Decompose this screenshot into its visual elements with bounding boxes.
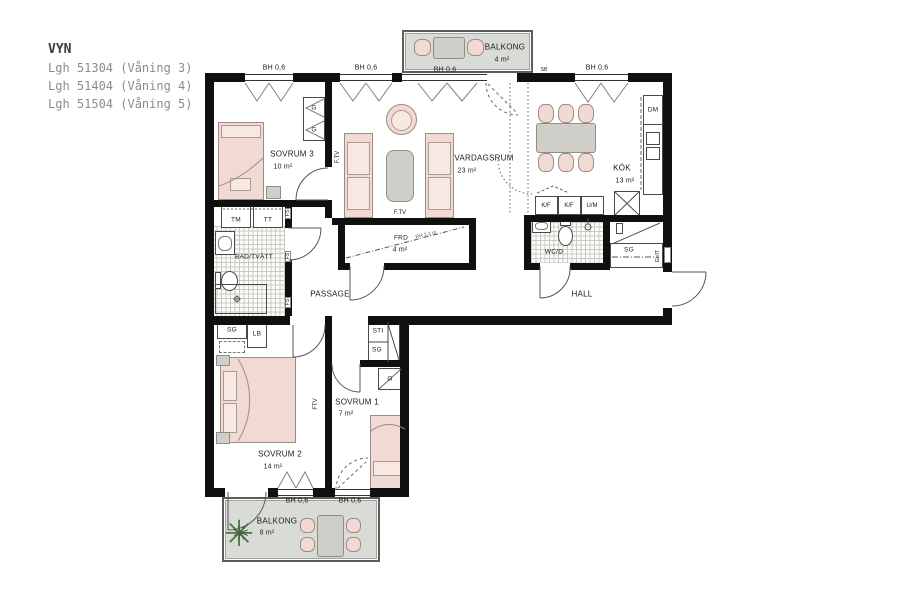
window-sovrum1 <box>335 489 370 496</box>
wall <box>368 316 405 325</box>
wall <box>392 73 402 82</box>
room-label-vardagsrum: VARDAGSRUM <box>454 154 513 163</box>
dishwasher-label: DM <box>648 107 659 114</box>
tv-outlet-label: F.TV <box>335 151 341 163</box>
wardrobe-label: G <box>311 105 316 112</box>
wall <box>293 73 340 82</box>
window-height-label: BH 0,6 <box>586 65 609 72</box>
door-frd <box>350 266 384 300</box>
pillow-sovrum2-1 <box>223 371 237 401</box>
coffee-table <box>386 150 414 202</box>
wc-toilet <box>558 226 573 246</box>
room-label-wcd: WC/D <box>545 249 563 256</box>
window-sovrum3 <box>245 74 293 81</box>
pillow-sovrum3 <box>221 125 261 138</box>
nightstand-sovrum3 <box>266 186 281 199</box>
tv-outlet-label: FTV <box>313 398 319 409</box>
apartment-line-3: Lgh 51504 (Våning 5) <box>48 97 193 111</box>
wardrobe-label: G <box>387 376 392 383</box>
room-area-kok: 13 m² <box>616 178 635 185</box>
shaft-sti-label: STI <box>373 328 384 335</box>
nightstand-sovrum2-1 <box>216 355 230 366</box>
wall <box>400 316 672 325</box>
wall <box>205 200 332 207</box>
window-height-label: BH 0,6 <box>263 65 286 72</box>
bathroom-sink-basin <box>218 236 232 251</box>
balcony-chair <box>346 518 361 533</box>
window-door-sovrum1-dashed <box>336 458 368 490</box>
dining-chair <box>578 153 594 172</box>
washer-label: TM <box>231 217 241 224</box>
dryer-label: TT <box>264 217 272 224</box>
room-label-passage: PASSAGE <box>310 290 349 299</box>
room-label-sovrum3: SOVRUM 3 <box>270 150 314 159</box>
room-label-sovrum2: SOVRUM 2 <box>258 450 302 459</box>
window-height-label: BH 0,6 <box>286 498 309 505</box>
room-area-sovrum1: 7 m² <box>339 411 354 418</box>
wall-mark-label: FS <box>285 299 291 305</box>
window-casement-icon <box>245 83 293 101</box>
balcony-table-top <box>433 37 465 59</box>
fridge-freezer-label: K/F <box>541 203 550 209</box>
wall <box>524 215 672 222</box>
window-vardagsrum <box>340 74 392 81</box>
door-badtvatt <box>289 228 321 260</box>
window-sovrum2 <box>278 489 313 496</box>
room-area-sovrum2: 14 m² <box>264 464 283 471</box>
opening-dotted-arc <box>498 160 532 194</box>
room-area-balkong-bottom: 8 m² <box>260 530 275 537</box>
wall <box>325 82 332 167</box>
window-height-label: BH 0,6 <box>339 498 362 505</box>
wall-mark-sb-label: SB <box>541 67 548 73</box>
wall <box>570 263 603 270</box>
sofa-right-cushion-2 <box>428 177 451 210</box>
wall <box>205 488 225 497</box>
dining-chair <box>538 153 554 172</box>
kitchen-sink-basin-1 <box>646 132 660 145</box>
tv-outlet-label: F.TV <box>394 210 406 216</box>
room-label-balkong-top: BALKONG <box>485 43 525 52</box>
dining-chair <box>558 153 574 172</box>
window-casement-icon <box>340 83 392 101</box>
wall <box>384 263 476 270</box>
wall <box>205 73 214 497</box>
room-label-frd: FRD <box>394 235 408 242</box>
wall <box>332 218 476 225</box>
room-label-kok: KÖK <box>613 164 631 173</box>
apartment-line-2: Lgh 51404 (Våning 4) <box>48 79 193 93</box>
cabinet-peak-line <box>537 186 569 193</box>
electrical-cabinet-label: EL/IT <box>655 250 661 262</box>
door-sovrum3 <box>296 168 328 200</box>
shower-area <box>215 284 267 314</box>
window-casement-icon <box>278 472 313 488</box>
room-label-hall: HALL <box>571 290 592 299</box>
room-label-balkong-bottom: BALKONG <box>257 517 297 526</box>
oven-micro-label: U/M <box>587 203 598 209</box>
closet-sg-label: SG <box>372 347 382 354</box>
wall-mark-label: FS <box>285 210 291 216</box>
view-title: VYN <box>48 42 71 57</box>
kitchen-sink-basin-2 <box>646 147 660 160</box>
closet-dashed-detail <box>219 341 245 353</box>
wall <box>360 360 409 367</box>
dining-table <box>536 123 596 153</box>
balcony-table-bottom <box>317 515 344 557</box>
closet-sg-label: SG <box>624 247 634 254</box>
closet-lb-label: LB <box>253 331 261 338</box>
pillow-sovrum2-2 <box>223 403 237 433</box>
wall-inset-elit <box>664 247 671 263</box>
window-height-label: BH 0,6 <box>434 67 457 74</box>
wall <box>663 73 672 272</box>
wardrobe-label: G <box>311 127 316 134</box>
door-sovrum2 <box>293 325 325 357</box>
balcony-chair <box>300 518 315 533</box>
wall <box>517 73 575 82</box>
window-kok <box>575 74 628 81</box>
wall <box>603 222 610 270</box>
blanket-sovrum3 <box>230 178 251 191</box>
room-area-sovrum3: 10 m² <box>274 164 293 171</box>
sofa-left-cushion-2 <box>347 177 370 210</box>
wall <box>205 316 290 325</box>
wall <box>524 263 540 270</box>
door-entry <box>672 272 706 306</box>
window-balcony-top <box>402 74 487 81</box>
window-casement-icon <box>418 83 477 101</box>
room-area-balkong-top: 4 m² <box>495 57 510 64</box>
balcony-chair <box>414 39 431 56</box>
wall <box>268 488 278 497</box>
room-label-bad: BAD/TVÄTT <box>235 254 273 261</box>
window-height-label: BH 0,6 <box>355 65 378 72</box>
wc-sink-basin <box>535 222 548 230</box>
door-sovrum1 <box>332 364 360 392</box>
floorplan-page: VYN Lgh 51304 (Våning 3) Lgh 51404 (Våni… <box>0 0 900 600</box>
sofa-right-cushion-1 <box>428 142 451 175</box>
room-label-sovrum1: SOVRUM 1 <box>335 398 379 407</box>
sofa-left-cushion-1 <box>347 142 370 175</box>
closet-sg-label: SG <box>227 327 237 334</box>
nightstand-sovrum2-2 <box>216 432 230 444</box>
ceiling-height-note: RH 2,2 m <box>415 230 437 241</box>
dining-chair <box>558 104 574 123</box>
room-area-frd: 4 m² <box>393 247 408 254</box>
wall <box>370 488 409 497</box>
wall <box>400 316 409 497</box>
armchair-seat <box>391 110 412 131</box>
stove-box <box>614 191 640 216</box>
balcony-chair <box>300 537 315 552</box>
apartment-line-1: Lgh 51304 (Våning 3) <box>48 61 193 75</box>
balcony-chair <box>346 537 361 552</box>
fridge-freezer-label: K/F <box>564 203 573 209</box>
room-area-vardagsrum: 23 m² <box>458 168 477 175</box>
window-casement-icon <box>575 83 628 102</box>
pillow-sovrum1 <box>373 461 402 476</box>
dining-chair <box>538 104 554 123</box>
balcony-chair <box>467 39 484 56</box>
wall <box>325 316 332 497</box>
door-balcony-top-dashed <box>486 83 518 115</box>
wall <box>338 263 350 270</box>
vent-box <box>616 223 623 234</box>
door-wcd <box>540 266 570 298</box>
dining-chair <box>578 104 594 123</box>
wall-mark-label: FS <box>285 253 291 259</box>
